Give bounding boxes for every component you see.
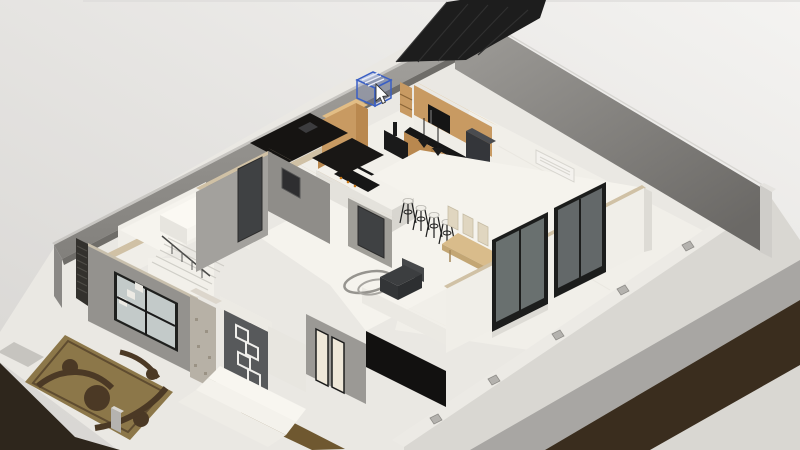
wall-end-cap [644, 188, 652, 252]
floorplan-3d-viewport[interactable] [0, 0, 800, 450]
narrow-window[interactable] [332, 337, 344, 393]
narrow-window[interactable] [316, 329, 328, 386]
corner-post [760, 185, 772, 258]
corner-shelves[interactable] [400, 82, 412, 118]
bedroom-door[interactable] [238, 157, 262, 242]
selection-box[interactable] [357, 72, 391, 106]
rug-blob [84, 385, 110, 411]
app-viewport[interactable] [0, 0, 800, 450]
viewport-top-edge [83, 0, 800, 2]
upper-cabinet-side [356, 103, 368, 147]
